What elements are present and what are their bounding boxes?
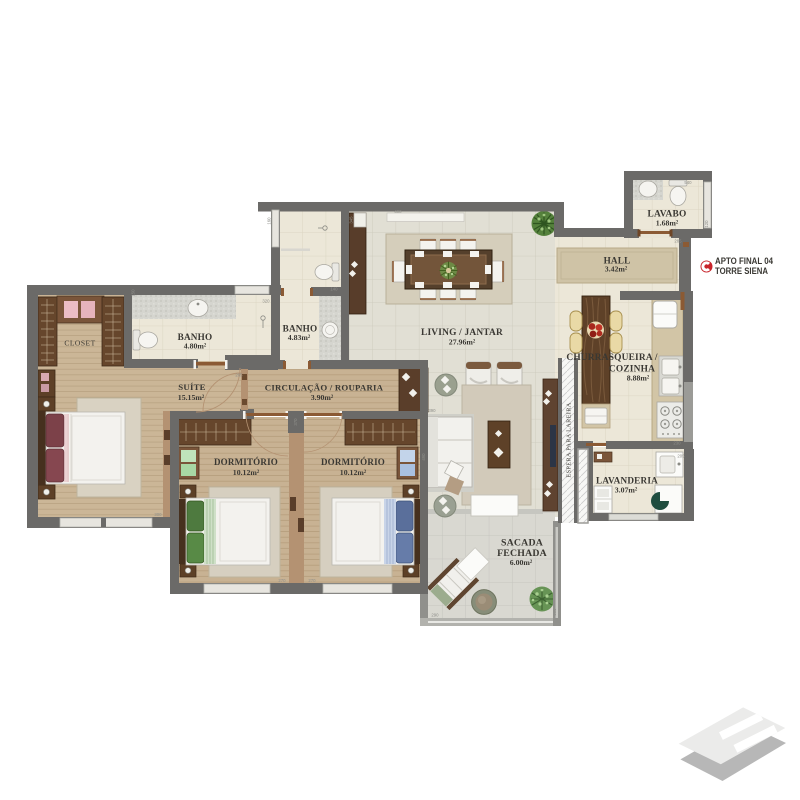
svg-text:370: 370 xyxy=(293,418,298,426)
svg-text:DORMITÓRIO: DORMITÓRIO xyxy=(214,457,278,467)
svg-text:BANHO: BANHO xyxy=(283,324,318,334)
svg-text:6.00m²: 6.00m² xyxy=(510,558,533,567)
svg-text:3.07m²: 3.07m² xyxy=(615,486,638,495)
svg-text:APTO FINAL 04: APTO FINAL 04 xyxy=(715,256,774,266)
svg-text:4.83m²: 4.83m² xyxy=(288,333,311,342)
svg-text:345: 345 xyxy=(349,216,354,224)
svg-text:BANHO: BANHO xyxy=(178,332,213,342)
svg-text:400: 400 xyxy=(394,209,402,214)
svg-text:3.42m²: 3.42m² xyxy=(605,265,628,274)
svg-text:120: 120 xyxy=(704,220,709,228)
svg-text:SACADA: SACADA xyxy=(501,538,543,549)
svg-text:270: 270 xyxy=(278,578,286,583)
svg-text:8.88m²: 8.88m² xyxy=(627,374,650,383)
svg-text:580: 580 xyxy=(552,608,557,616)
svg-text:265: 265 xyxy=(235,373,243,378)
svg-text:SUÍTE: SUÍTE xyxy=(178,382,205,392)
svg-text:10.12m²: 10.12m² xyxy=(233,468,260,477)
svg-text:140: 140 xyxy=(330,287,338,292)
svg-text:ESPERA PARA LAREIRA: ESPERA PARA LAREIRA xyxy=(566,402,573,477)
svg-text:TORRE SIENA: TORRE SIENA xyxy=(715,266,768,276)
svg-text:3.90m²: 3.90m² xyxy=(311,393,334,402)
svg-text:230: 230 xyxy=(673,441,681,446)
svg-text:LIVING / JANTAR: LIVING / JANTAR xyxy=(421,328,503,338)
svg-text:15.15m²: 15.15m² xyxy=(178,393,205,402)
svg-text:160: 160 xyxy=(267,217,272,225)
svg-text:27.96m²: 27.96m² xyxy=(449,338,476,347)
svg-text:CLOSET: CLOSET xyxy=(64,339,95,348)
svg-text:320: 320 xyxy=(262,299,270,304)
svg-text:CHURRASQUEIRA /: CHURRASQUEIRA / xyxy=(566,353,657,363)
svg-text:270: 270 xyxy=(308,578,316,583)
svg-text:1.68m²: 1.68m² xyxy=(656,219,679,228)
svg-text:540: 540 xyxy=(684,180,692,185)
svg-text:150: 150 xyxy=(131,289,136,297)
svg-text:4.80m²: 4.80m² xyxy=(184,342,207,351)
svg-text:290: 290 xyxy=(431,613,439,618)
svg-text:490: 490 xyxy=(421,453,426,461)
svg-text:390: 390 xyxy=(428,408,436,413)
svg-text:DORMITÓRIO: DORMITÓRIO xyxy=(321,457,385,467)
svg-text:285: 285 xyxy=(674,239,682,244)
svg-text:CIRCULAÇÃO / ROUPARIA: CIRCULAÇÃO / ROUPARIA xyxy=(265,383,384,393)
svg-text:205: 205 xyxy=(677,454,685,459)
svg-text:300: 300 xyxy=(154,512,162,517)
svg-text:LAVANDERIA: LAVANDERIA xyxy=(596,476,658,486)
svg-text:10.12m²: 10.12m² xyxy=(340,468,367,477)
